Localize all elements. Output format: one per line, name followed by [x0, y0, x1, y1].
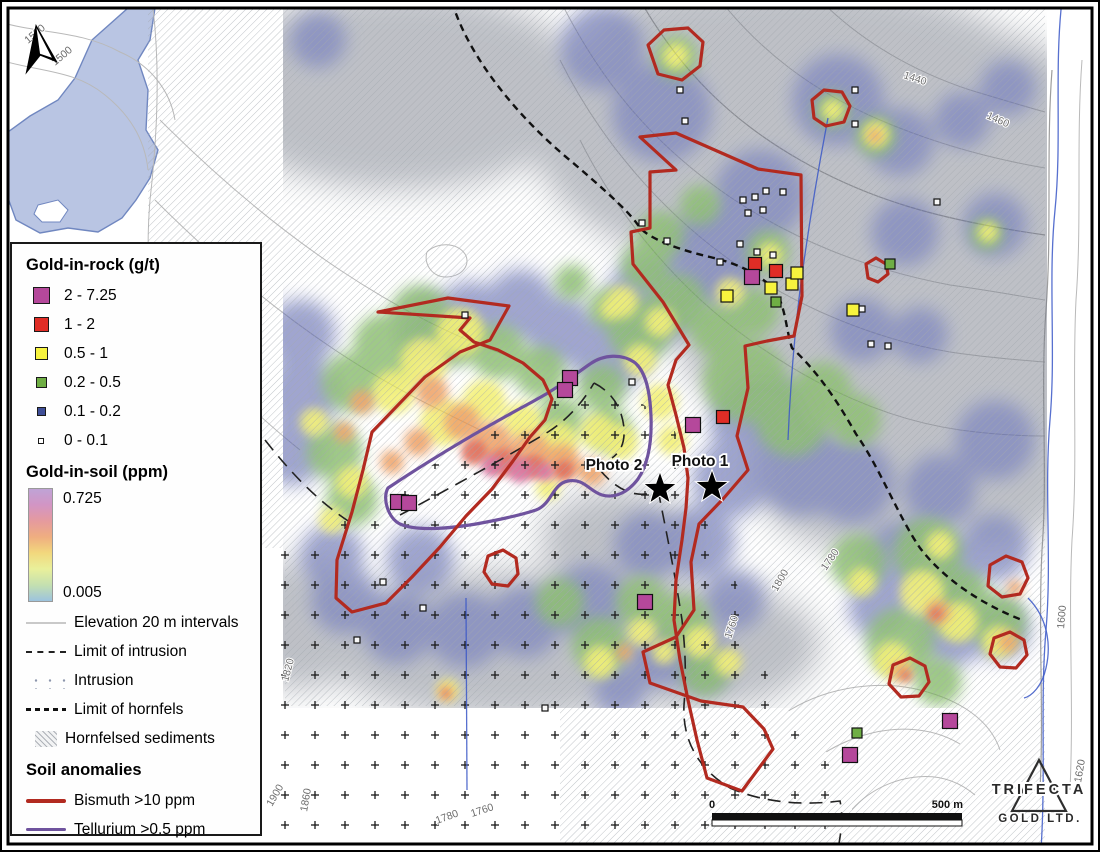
elevation-label: 1600 [1055, 605, 1069, 629]
legend-line-item-row: Intrusion [26, 666, 250, 695]
rock-class-swatch [33, 287, 50, 304]
rock-class-label: 1 - 2 [64, 316, 95, 334]
soil-gradient-bar [28, 488, 53, 602]
rock-sample-white [420, 605, 426, 611]
legend-rock-class-row: 0.5 - 1 [26, 339, 250, 368]
rock-class-swatch [34, 317, 49, 332]
rock-sample-magenta [686, 418, 701, 433]
line-item-label: Elevation 20 m intervals [74, 614, 239, 632]
rock-class-label: 0.2 - 0.5 [64, 374, 121, 392]
rock-sample-red [717, 411, 730, 424]
rock-sample-red [749, 258, 762, 271]
rock-class-swatch [38, 438, 44, 444]
legend-line-item-row: Limit of intrusion [26, 637, 250, 666]
rock-sample-white [934, 199, 940, 205]
legend-soil-title: Gold-in-soil (ppm) [26, 463, 250, 482]
rock-sample-magenta [943, 714, 958, 729]
dash-dense-swatch [26, 708, 66, 711]
rock-sample-white [868, 341, 874, 347]
legend-rock-class-row: 0.2 - 0.5 [26, 368, 250, 397]
rock-sample-white [763, 188, 769, 194]
rock-sample-green [885, 259, 895, 269]
line-item-label: Hornfelsed sediments [65, 730, 215, 748]
rock-class-label: 2 - 7.25 [64, 287, 117, 305]
rock-sample-magenta [558, 383, 573, 398]
rock-sample-yellow [847, 304, 859, 316]
legend-anomaly-row: Bismuth >10 ppm [26, 786, 250, 815]
legend-rock-class-row: 2 - 7.25 [26, 281, 250, 310]
legend-line-item-row: Elevation 20 m intervals [26, 608, 250, 637]
rock-sample-white [740, 197, 746, 203]
logo-line2: GOLD LTD. [998, 813, 1082, 825]
legend-line-item-row: Hornfelsed sediments [26, 724, 250, 753]
rock-class-swatch [37, 407, 46, 416]
line-item-label: Limit of hornfels [74, 701, 183, 719]
rock-sample-white [639, 220, 645, 226]
scale-bar-zero: 0 [709, 799, 715, 811]
rock-sample-yellow [765, 282, 777, 294]
rock-sample-yellow [721, 290, 733, 302]
legend-anomalies-title: Soil anomalies [26, 761, 250, 780]
rock-sample-white [737, 241, 743, 247]
rock-sample-white [885, 343, 891, 349]
rock-sample-white [780, 189, 786, 195]
rock-sample-white [752, 194, 758, 200]
rock-sample-white [754, 249, 760, 255]
dash-long-swatch [26, 651, 66, 653]
rock-sample-white [852, 121, 858, 127]
rock-sample-white [717, 259, 723, 265]
rock-class-swatch [36, 377, 47, 388]
legend-rock-title: Gold-in-rock (g/t) [26, 256, 250, 275]
legend-soil-gradient: 0.725 0.005 [28, 488, 250, 602]
anomaly-line-swatch [26, 828, 66, 831]
rock-sample-white [745, 210, 751, 216]
soil-max-value: 0.725 [63, 490, 102, 508]
legend-line-items: Elevation 20 m intervalsLimit of intrusi… [26, 608, 250, 753]
rock-sample-green [852, 728, 862, 738]
photo-label: Photo 1 [672, 453, 729, 470]
elevation-swatch [26, 622, 66, 624]
line-item-label: Intrusion [74, 672, 133, 690]
rock-sample-magenta [638, 595, 653, 610]
map-page: Photo 2Photo 115201500144014601820190018… [0, 0, 1100, 852]
rock-sample-magenta [402, 496, 417, 511]
rock-sample-green [771, 297, 781, 307]
legend-anomaly-items: Bismuth >10 ppmTellurium >0.5 ppm [26, 786, 250, 844]
rock-sample-white [760, 207, 766, 213]
rock-class-label: 0.5 - 1 [64, 345, 108, 363]
rock-sample-white [354, 637, 360, 643]
rock-sample-white [852, 87, 858, 93]
rock-sample-white [629, 379, 635, 385]
legend-line-item-row: Limit of hornfels [26, 695, 250, 724]
rock-class-swatch [35, 347, 48, 360]
dots-swatch [26, 673, 66, 689]
anomaly-label: Bismuth >10 ppm [74, 792, 195, 810]
rock-sample-white [859, 306, 865, 312]
legend-panel: Gold-in-rock (g/t) 2 - 7.251 - 20.5 - 10… [10, 242, 262, 836]
photo-label: Photo 2 [586, 457, 643, 474]
rock-sample-magenta [745, 270, 760, 285]
rock-sample-red [770, 265, 783, 278]
rock-sample-yellow [786, 278, 798, 290]
logo-line1: TRIFECTA [992, 782, 1087, 798]
rock-class-label: 0 - 0.1 [64, 432, 108, 450]
hatch-swatch [35, 731, 57, 747]
rock-sample-white [542, 705, 548, 711]
rock-sample-white [462, 312, 468, 318]
rock-sample-white [380, 579, 386, 585]
rock-sample-magenta [843, 748, 858, 763]
rock-sample-white [664, 238, 670, 244]
line-item-label: Limit of intrusion [74, 643, 187, 661]
rock-sample-white [677, 87, 683, 93]
legend-rock-class-row: 1 - 2 [26, 310, 250, 339]
rock-class-label: 0.1 - 0.2 [64, 403, 121, 421]
scale-bar-max: 500 m [932, 799, 963, 811]
legend-rock-class-row: 0.1 - 0.2 [26, 397, 250, 426]
rock-sample-yellow [791, 267, 803, 279]
legend-anomaly-row: Tellurium >0.5 ppm [26, 815, 250, 844]
anomaly-label: Tellurium >0.5 ppm [74, 821, 205, 839]
rock-sample-white [770, 252, 776, 258]
legend-rock-class-row: 0 - 0.1 [26, 426, 250, 455]
anomaly-line-swatch [26, 799, 66, 803]
rock-sample-white [682, 118, 688, 124]
legend-rock-classes: 2 - 7.251 - 20.5 - 10.2 - 0.50.1 - 0.20 … [26, 281, 250, 455]
soil-min-value: 0.005 [63, 584, 102, 602]
